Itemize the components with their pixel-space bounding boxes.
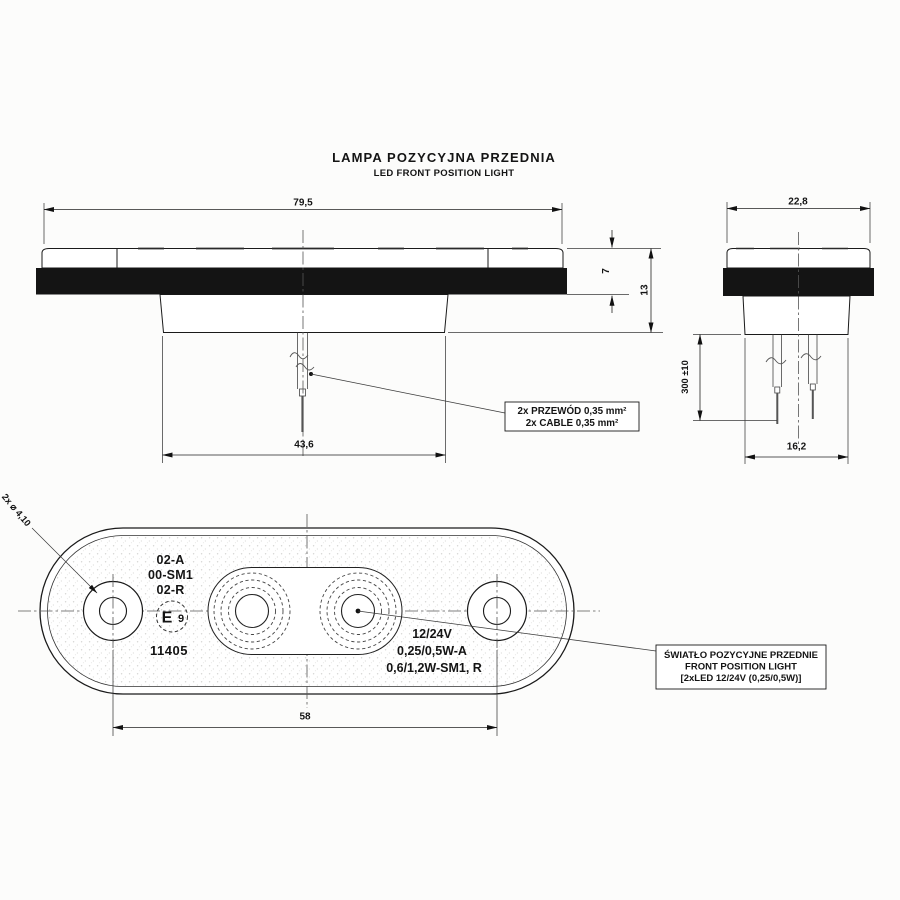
dim-end-base-width-label: 16,2 (787, 442, 807, 453)
dim-side-width-label: 79,5 (293, 198, 313, 209)
drawing-title: LAMPA POZYCYJNA PRZEDNIA LED FRONT POSIT… (332, 150, 556, 179)
voltage-marking: 12/24V (412, 627, 452, 641)
side-view: 79,5 7 13 43,6 2x PRZEWÓD 0,35 m (36, 198, 663, 464)
power-marking-1: 0,25/0,5W-A (397, 644, 467, 658)
side-view-cable (290, 333, 314, 433)
marking-line2: 00-SM1 (148, 568, 193, 582)
cable-callout-line2: 2x CABLE 0,35 mm² (526, 418, 619, 429)
cable-break-mark (801, 354, 821, 360)
function-line3: [2xLED 12/24V (0,25/0,5W)] (681, 673, 802, 684)
e-approval-number: 9 (178, 613, 184, 625)
part-number: 11405 (150, 643, 188, 658)
side-view-lens (42, 249, 563, 269)
function-line2: FRONT POSITION LIGHT (685, 662, 797, 673)
dim-total-height-label: 13 (640, 284, 651, 296)
e-approval-letter: E (162, 610, 173, 627)
dim-base-width: 43,6 (163, 336, 446, 463)
cable-break-mark (290, 353, 308, 359)
cable-callout-line1: 2x PRZEWÓD 0,35 mm² (518, 405, 628, 417)
power-marking-2: 0,6/1,2W-SM1, R (386, 661, 482, 675)
cable-break-mark (766, 358, 786, 364)
side-view-base (160, 295, 448, 333)
dim-cable-length: 300 ±10 (680, 335, 777, 421)
dim-end-width-label: 22,8 (788, 197, 808, 208)
cable-break-mark (296, 364, 314, 371)
marking-line3: 02-R (157, 583, 185, 597)
drawing-canvas: LAMPA POZYCYJNA PRZEDNIA LED FRONT POSIT… (0, 0, 900, 900)
title-primary: LAMPA POZYCYJNA PRZEDNIA (332, 150, 556, 165)
title-secondary: LED FRONT POSITION LIGHT (374, 168, 515, 179)
front-view: 02-A 00-SM1 02-R E 9 11405 12/24V 0,25/0… (0, 492, 826, 736)
side-view-rubber-band (36, 268, 567, 295)
dim-base-width-label: 43,6 (294, 440, 314, 451)
cable-callout: 2x PRZEWÓD 0,35 mm² 2x CABLE 0,35 mm² (309, 372, 639, 431)
dim-hole-spacing-label: 58 (299, 712, 311, 723)
end-view-cables (766, 335, 821, 425)
dim-end-base-width: 16,2 (745, 338, 848, 464)
dim-cable-length-label: 300 ±10 (680, 360, 690, 394)
technical-drawing-page: LAMPA POZYCYJNA PRZEDNIA LED FRONT POSIT… (0, 0, 900, 900)
hole-diameter-label: 2x ⌀ 4,10 (0, 492, 33, 528)
end-view-base (743, 296, 850, 335)
function-line1: ŚWIATŁO POZYCYJNE PRZEDNIE (664, 649, 818, 661)
end-view: 22,8 300 ±10 16,2 (680, 197, 874, 465)
dim-lens-height: 7 (567, 230, 661, 313)
dim-lens-height-label: 7 (601, 268, 612, 274)
led-bezel (208, 568, 402, 655)
marking-line1: 02-A (157, 553, 185, 567)
